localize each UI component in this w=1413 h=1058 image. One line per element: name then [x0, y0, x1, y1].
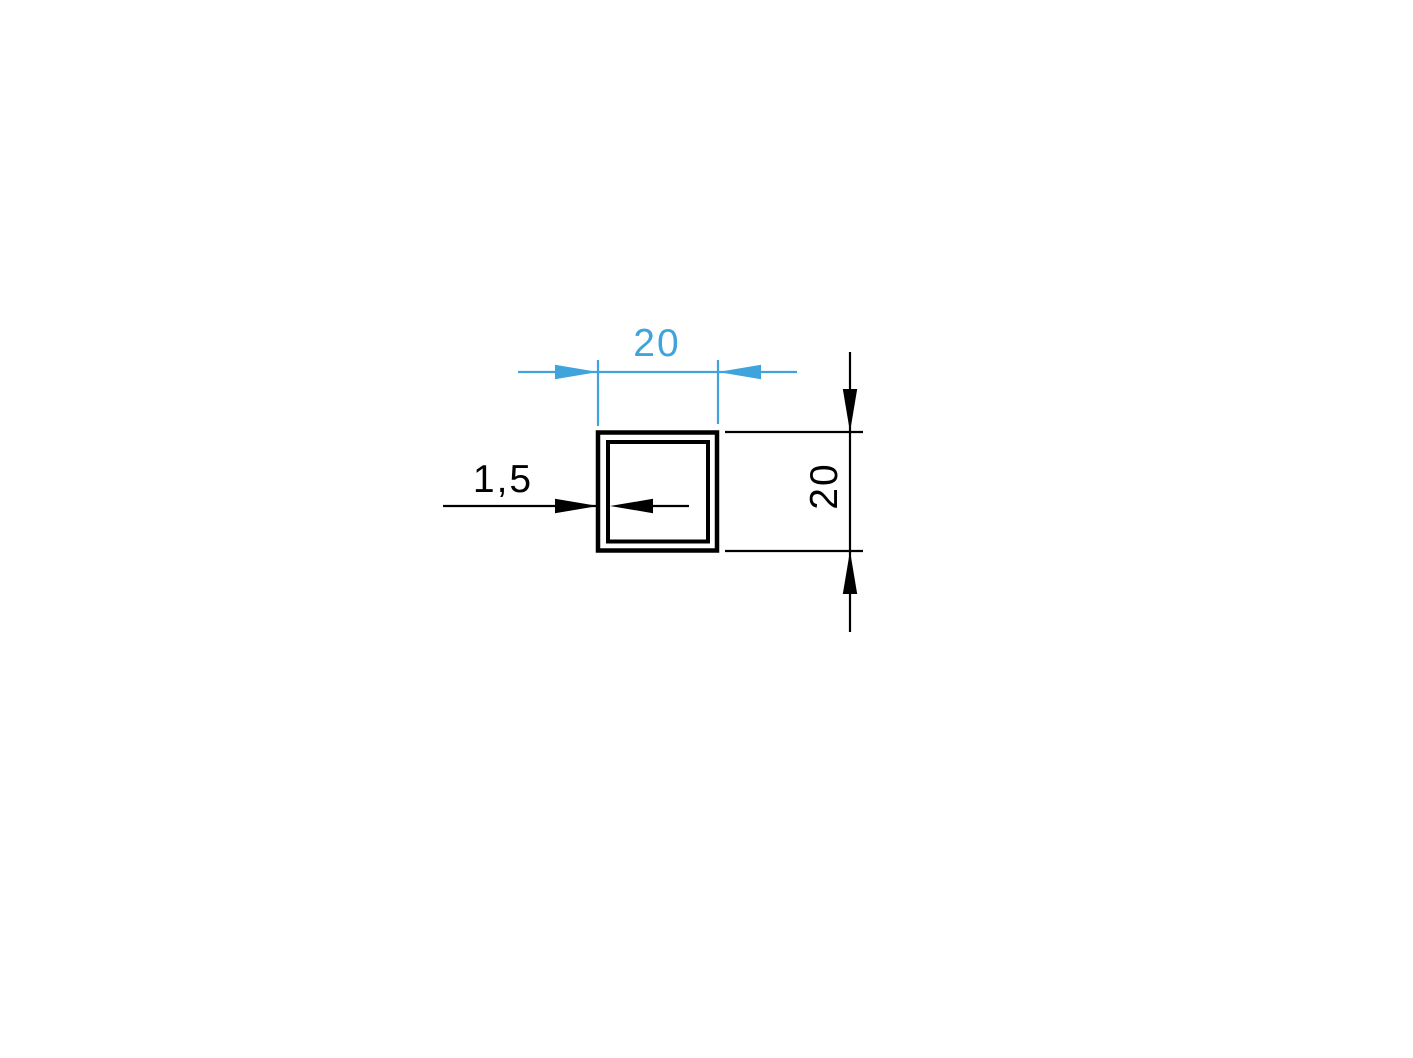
height-dimension-label: 20 — [803, 462, 846, 509]
thickness-arrow-left-icon — [610, 499, 653, 513]
height-dimension: 20 — [725, 352, 863, 632]
thickness-label: 1,5 — [473, 458, 533, 501]
thickness-arrow-right-icon — [555, 499, 598, 513]
profile-outline — [598, 433, 717, 551]
technical-drawing: 20 1,5 20 — [0, 0, 1413, 1058]
height-arrow-top-icon — [843, 389, 857, 432]
profile-outer-square — [598, 433, 717, 551]
width-dimension-label: 20 — [633, 322, 680, 365]
width-dimension: 20 — [518, 322, 797, 426]
profile-inner-square — [608, 442, 708, 542]
height-arrow-bottom-icon — [843, 551, 857, 594]
width-arrow-left-icon — [555, 365, 598, 379]
drawing-canvas: 20 1,5 20 — [0, 0, 1413, 1058]
thickness-callout: 1,5 — [443, 458, 689, 513]
width-arrow-right-icon — [718, 365, 761, 379]
